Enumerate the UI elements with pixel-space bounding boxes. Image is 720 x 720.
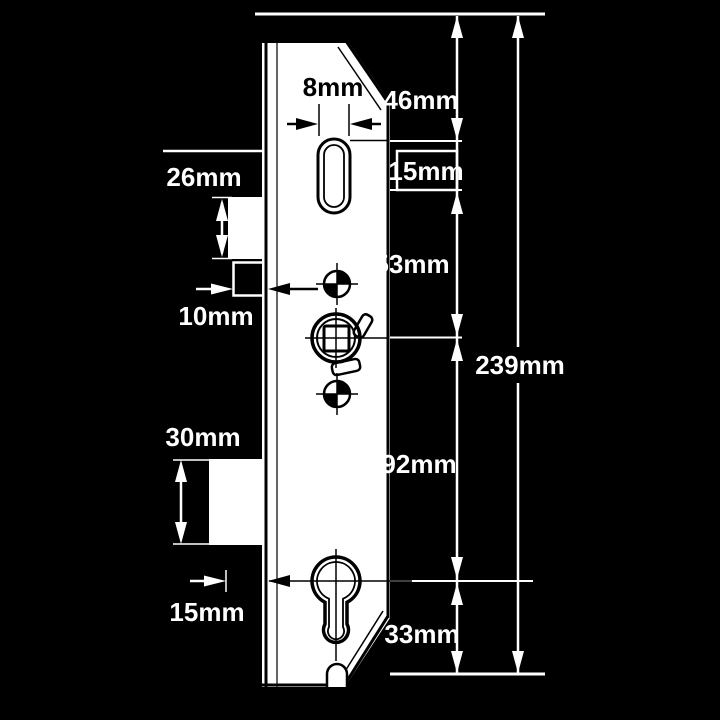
deadbolt-projection-label: 15mm — [169, 597, 244, 627]
latch-bolt — [228, 197, 265, 259]
spindle-to-cylinder-label: 92mm — [381, 449, 456, 479]
bottom-notch — [327, 664, 347, 687]
deadbolt-height-label: 30mm — [165, 422, 240, 452]
latch-projection-label: 10mm — [178, 301, 253, 331]
slot-width-label: 8mm — [303, 72, 364, 102]
overall-height-label: 239mm — [475, 350, 565, 380]
latch-slot-height-label: 15mm — [388, 156, 463, 186]
lock-dimension-diagram: 8mm 46mm 15mm 53mm 92mm 33mm 239mm 26mm … — [0, 0, 720, 720]
diagram-canvas: 8mm 46mm 15mm 53mm 92mm 33mm 239mm 26mm … — [0, 0, 720, 720]
top-to-latch-label: 46mm — [383, 85, 458, 115]
deadbolt — [209, 459, 265, 545]
latch-to-spindle-label: 53mm — [374, 249, 449, 279]
latch-height-label: 26mm — [166, 162, 241, 192]
cylinder-to-bottom-label: 33mm — [384, 619, 459, 649]
